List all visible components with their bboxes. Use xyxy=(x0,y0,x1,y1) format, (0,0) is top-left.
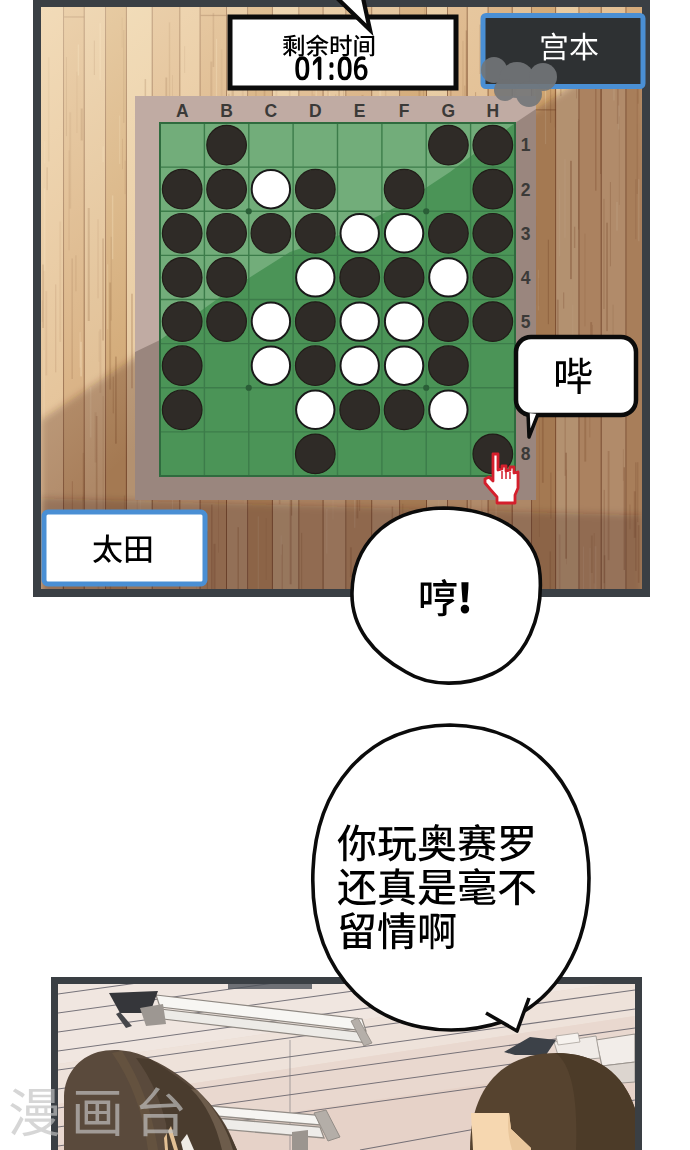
svg-text:F: F xyxy=(399,101,410,121)
svg-text:D: D xyxy=(309,101,322,121)
svg-text:4: 4 xyxy=(521,268,531,288)
svg-text:2: 2 xyxy=(521,180,531,200)
svg-text:A: A xyxy=(176,101,189,121)
svg-text:1: 1 xyxy=(521,135,531,155)
svg-text:G: G xyxy=(442,101,456,121)
svg-text:H: H xyxy=(486,101,499,121)
svg-text:5: 5 xyxy=(521,312,531,332)
svg-text:3: 3 xyxy=(521,224,531,244)
svg-text:E: E xyxy=(354,101,366,121)
svg-text:C: C xyxy=(265,101,278,121)
svg-text:B: B xyxy=(220,101,233,121)
svg-text:8: 8 xyxy=(521,444,531,464)
